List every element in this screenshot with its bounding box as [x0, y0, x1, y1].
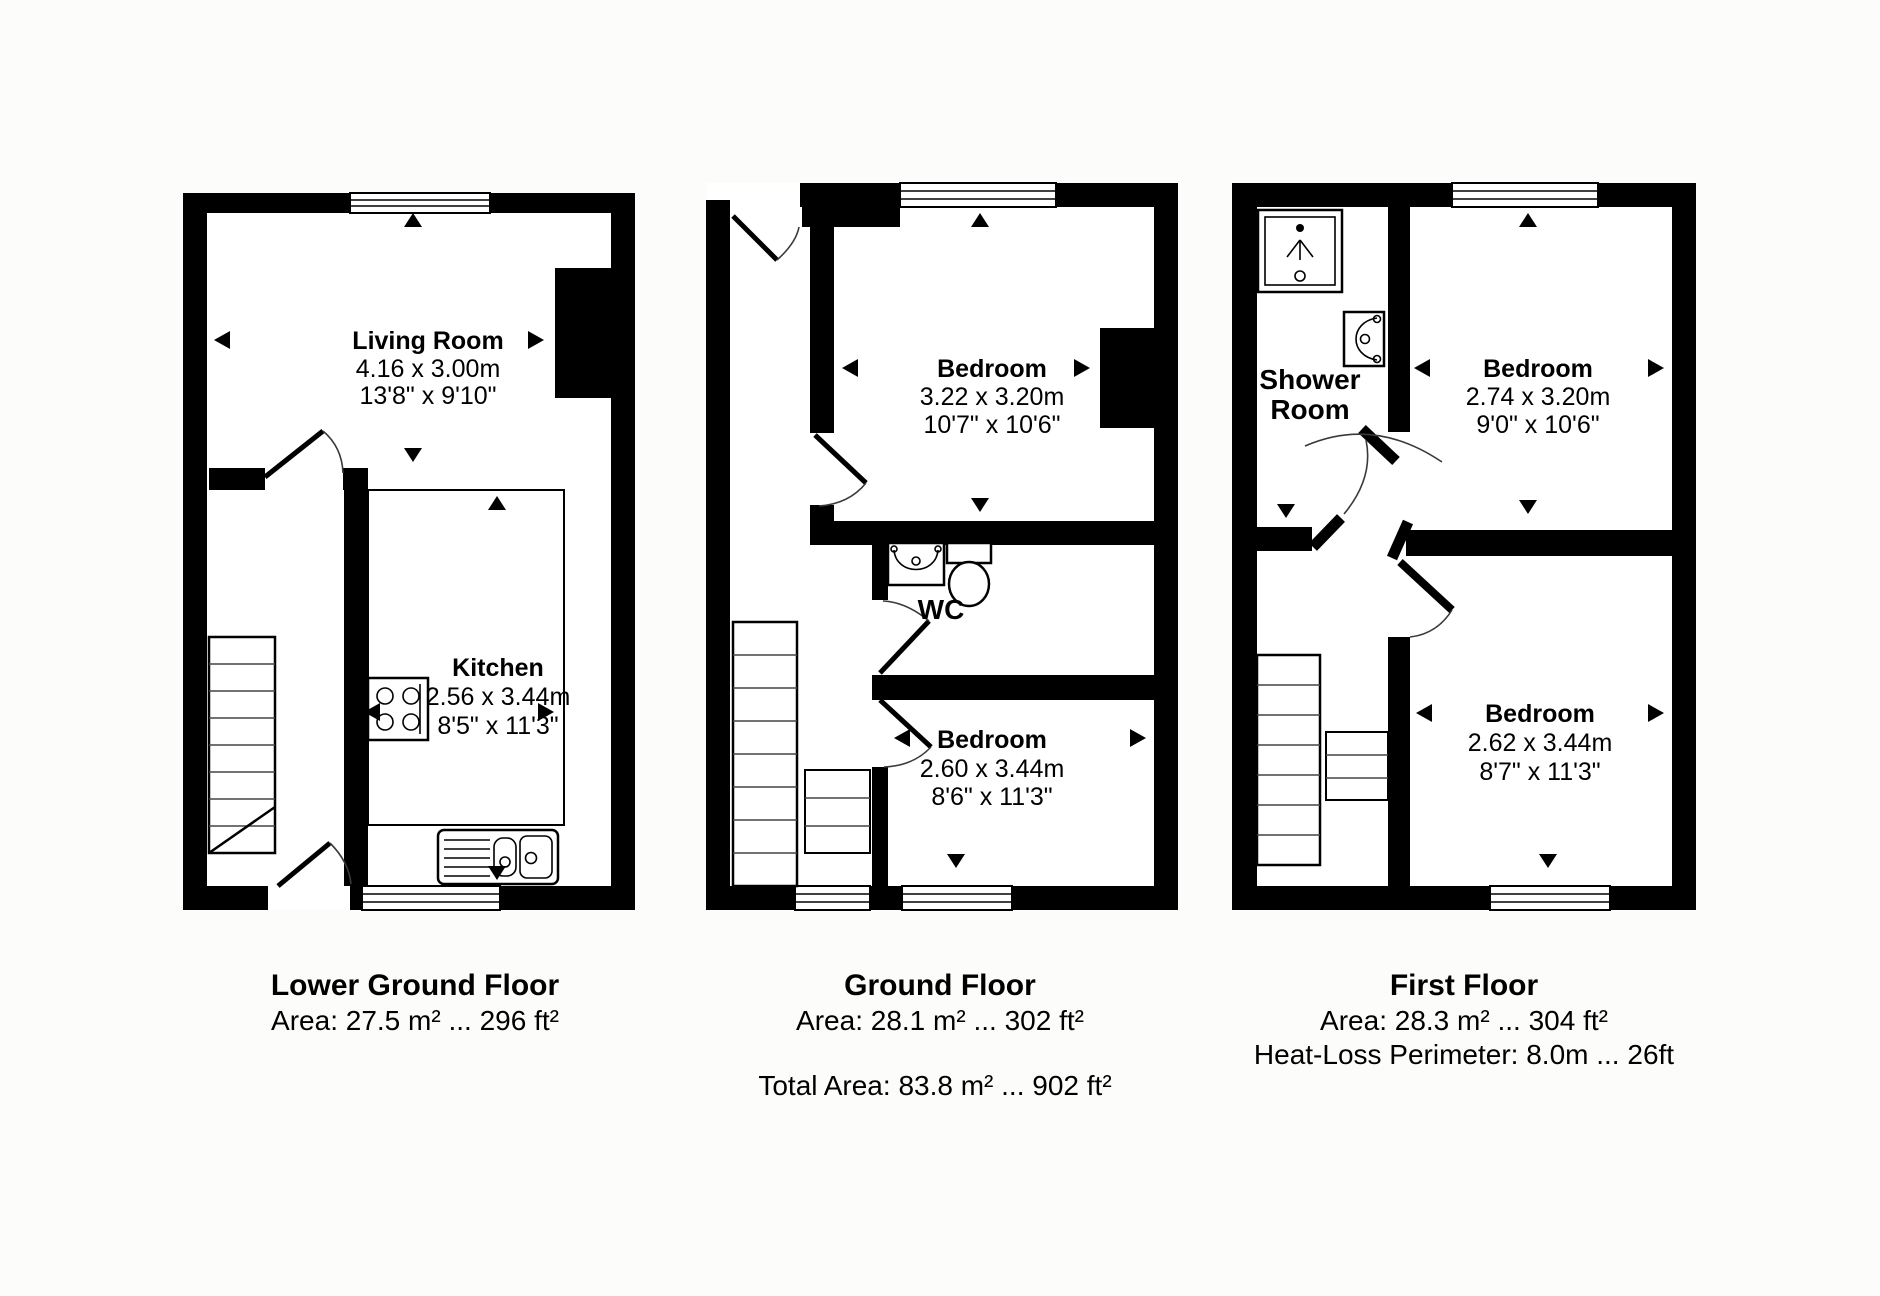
wall-segment: [1672, 183, 1696, 910]
window-icon: [350, 193, 490, 213]
wall-segment: [1257, 527, 1312, 551]
wall-segment: [1012, 886, 1178, 910]
caption-total-area: Total Area: 83.8 m² ... 902 ft²: [758, 1070, 1111, 1101]
bedroom1-imperial: 9'0" x 10'6": [1476, 411, 1599, 439]
floorplan-drawing: Living Room 4.16 x 3.00m 13'8" x 9'10" K…: [0, 0, 1880, 1296]
wall-segment: [706, 886, 795, 910]
wall-segment: [1232, 183, 1257, 910]
wall-segment: [183, 193, 207, 910]
bedroom2-name: Bedroom: [1485, 700, 1595, 728]
caption-lower-ground-title: Lower Ground Floor: [271, 969, 560, 1002]
floor-plan-first: Shower Room Bedroom 2.74 x 3.20m 9'0" x …: [1232, 183, 1696, 1070]
kitchen-imperial: 8'5" x 11'3": [437, 712, 558, 740]
basin-icon: [1344, 312, 1384, 366]
bedroom1-metric: 3.22 x 3.20m: [920, 383, 1065, 411]
wall-segment: [344, 468, 368, 886]
wall-segment: [872, 675, 1154, 700]
caption-first-perimeter: Heat-Loss Perimeter: 8.0m ... 26ft: [1254, 1039, 1674, 1070]
shower-room-name-line1: Shower: [1259, 364, 1360, 395]
bedroom2-metric: 2.62 x 3.44m: [1468, 729, 1613, 757]
bedroom1-name: Bedroom: [937, 355, 1047, 383]
bedroom1-metric: 2.74 x 3.20m: [1466, 383, 1611, 411]
shower-room-name-line2: Room: [1270, 394, 1349, 425]
wall-segment: [870, 886, 902, 910]
wall-segment: [209, 468, 265, 490]
bedroom1-name: Bedroom: [1483, 355, 1593, 383]
wall-segment: [1610, 886, 1696, 910]
floor-plan-lower-ground: Living Room 4.16 x 3.00m 13'8" x 9'10" K…: [183, 193, 635, 1036]
caption-first-title: First Floor: [1390, 969, 1539, 1002]
bedroom2-imperial: 8'7" x 11'3": [1479, 758, 1600, 786]
bedroom2-imperial: 8'6" x 11'3": [931, 783, 1052, 811]
wall-segment: [800, 183, 900, 207]
caption-lower-ground-area: Area: 27.5 m² ... 296 ft²: [271, 1005, 559, 1036]
wall-segment: [1232, 183, 1452, 207]
wall-segment: [1388, 637, 1410, 886]
window-icon: [1452, 183, 1598, 207]
chimney-breast: [555, 268, 611, 398]
window-icon: [1490, 886, 1610, 910]
chimney-breast: [1100, 328, 1154, 428]
bedroom2-name: Bedroom: [937, 726, 1047, 754]
shower-tray-icon: [1258, 210, 1342, 292]
floorplan-page: Living Room 4.16 x 3.00m 13'8" x 9'10" K…: [0, 0, 1880, 1296]
wall-segment: [500, 886, 635, 910]
caption-first-area: Area: 28.3 m² ... 304 ft²: [1320, 1005, 1608, 1036]
bedroom2-metric: 2.60 x 3.44m: [920, 755, 1065, 783]
basin-icon: [888, 543, 944, 585]
wall-segment: [1406, 530, 1672, 556]
wall-segment: [183, 193, 350, 213]
wall-segment: [810, 521, 1154, 545]
living-room-name: Living Room: [352, 327, 503, 355]
caption-ground-title: Ground Floor: [844, 969, 1036, 1002]
wall-segment: [706, 200, 730, 910]
window-icon: [900, 183, 1056, 207]
living-room-imperial: 13'8" x 9'10": [359, 382, 496, 410]
window-icon: [362, 886, 500, 910]
wall-segment: [183, 886, 268, 910]
wc-name: WC: [918, 594, 965, 625]
wall-segment: [872, 545, 888, 600]
caption-ground-area: Area: 28.1 m² ... 302 ft²: [796, 1005, 1084, 1036]
wall-segment: [350, 886, 362, 910]
wall-segment: [1388, 207, 1410, 432]
kitchen-metric: 2.56 x 3.44m: [426, 683, 571, 711]
kitchen-name: Kitchen: [452, 654, 544, 682]
wall-segment: [1154, 183, 1178, 910]
wall-segment: [1232, 886, 1490, 910]
living-room-metric: 4.16 x 3.00m: [356, 355, 501, 383]
wall-segment: [810, 207, 834, 433]
wall-segment: [872, 767, 888, 886]
window-icon: [902, 886, 1012, 910]
bedroom1-imperial: 10'7" x 10'6": [923, 411, 1060, 439]
window-icon: [795, 886, 870, 910]
wall-segment: [611, 193, 635, 910]
floor-plan-ground: Bedroom 3.22 x 3.20m 10'7" x 10'6" WC Be…: [706, 183, 1178, 1101]
